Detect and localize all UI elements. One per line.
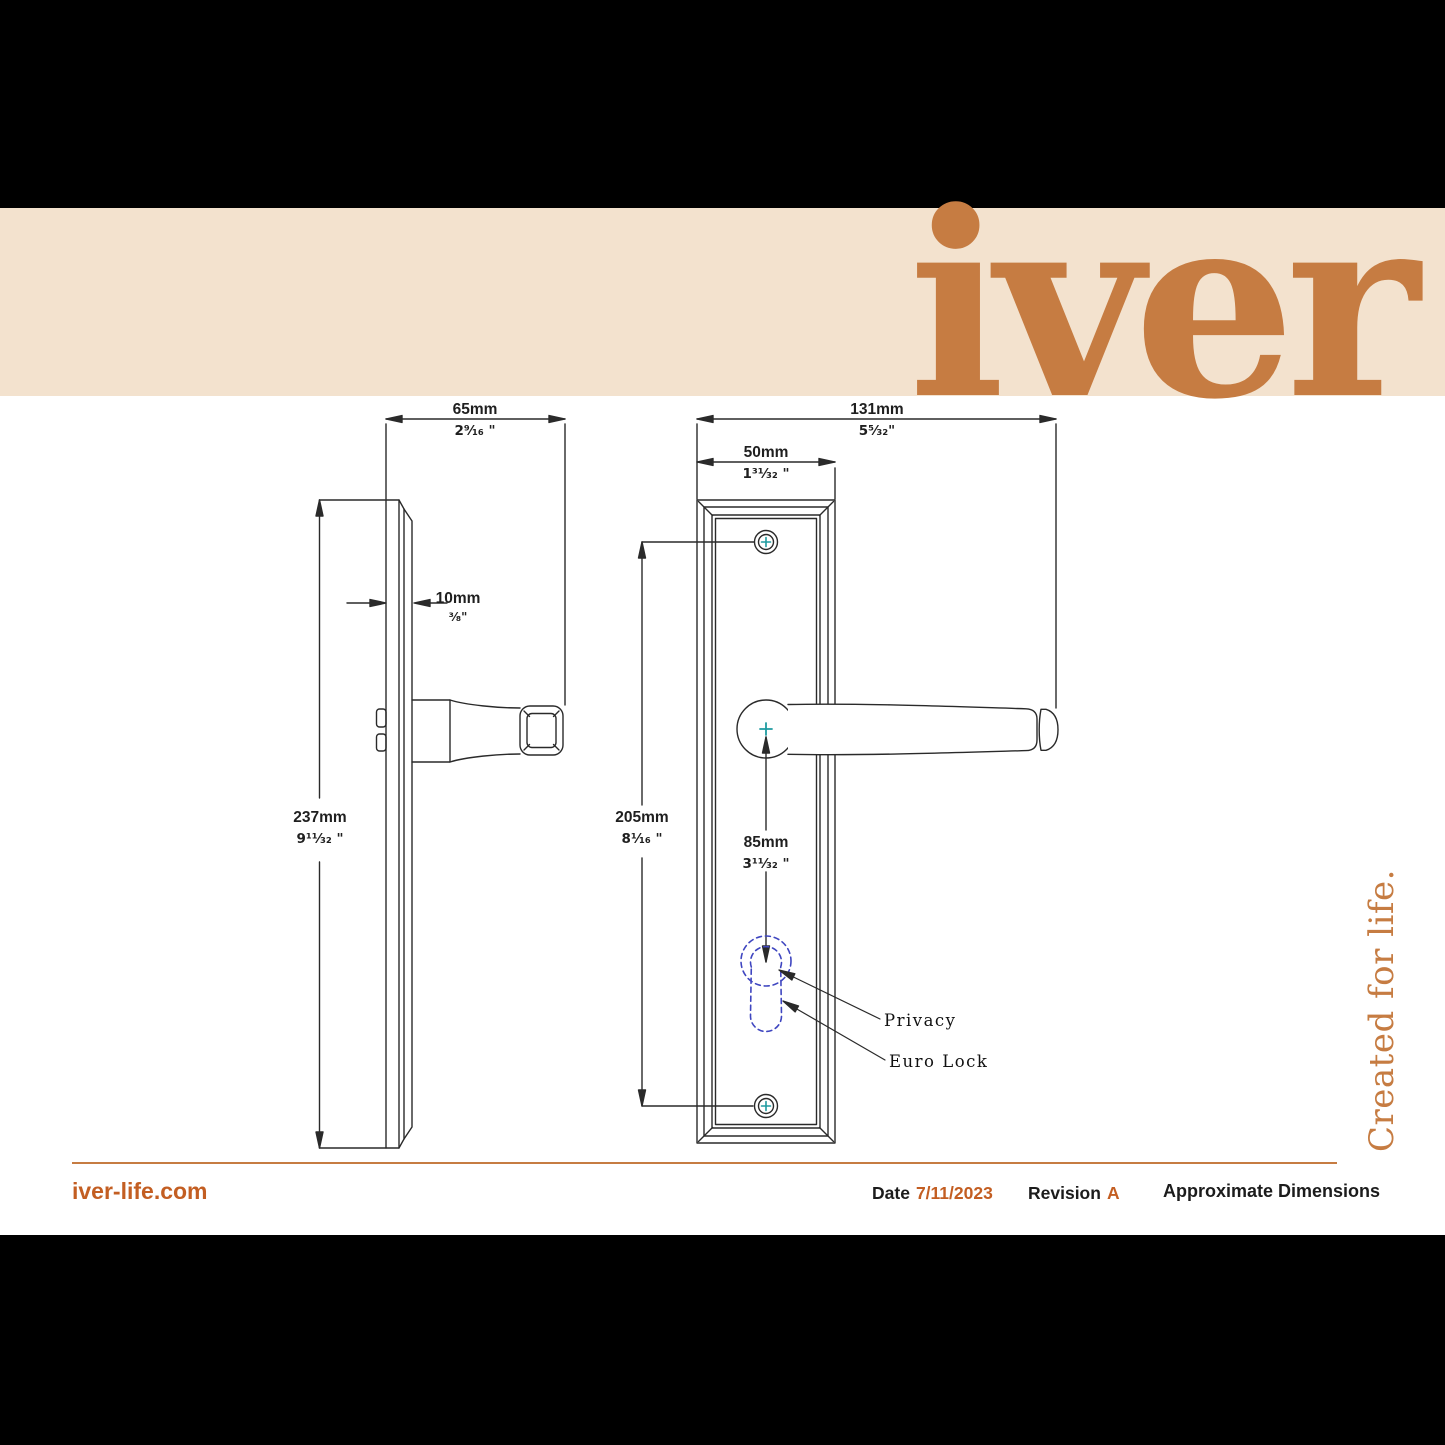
website-link[interactable]: iver-life.com <box>72 1178 208 1205</box>
dim-label-plate-width-mm: 50mm <box>744 444 789 461</box>
privacy-label: Privacy <box>884 1011 957 1030</box>
side-backplate <box>386 500 412 1148</box>
dim-label-centre-to-cylinder-inch: 3¹¹⁄₃₂ " <box>742 856 789 872</box>
technical-drawing: 65mm 2⁹⁄₁₆ " 131mm 5⁵⁄₃₂" 50mm 1³¹⁄₃₂ " … <box>0 396 1445 1235</box>
side-fixing-clips <box>377 709 387 751</box>
leader-lines <box>779 970 885 1060</box>
revision-label: Revision <box>1028 1183 1101 1203</box>
dim-projection <box>386 416 565 706</box>
dim-label-centre-to-cylinder-mm: 85mm <box>744 834 789 851</box>
dim-label-overall-height-mm: 237mm <box>293 809 346 826</box>
front-lever <box>737 700 1058 758</box>
euro-lock-label: Euro Lock <box>889 1052 988 1071</box>
dim-label-screw-centres-inch: 8¹⁄₁₆ " <box>621 831 662 847</box>
footer-note: Approximate Dimensions <box>1163 1181 1380 1202</box>
tagline-created-for-life: Created for life. <box>1362 869 1402 1152</box>
dim-label-projection-mm: 65mm <box>453 401 498 418</box>
bottom-screw <box>755 1095 778 1118</box>
footer-divider <box>72 1162 1337 1164</box>
footer-date: Date7/11/2023 <box>872 1183 993 1204</box>
side-lever <box>412 700 563 762</box>
date-label: Date <box>872 1183 910 1203</box>
dim-thickness <box>347 600 447 607</box>
dim-label-overall-height-inch: 9¹¹⁄₃₂ " <box>296 831 343 847</box>
dim-label-thickness-mm: 10mm <box>436 590 481 607</box>
dim-label-projection-inch: 2⁹⁄₁₆ " <box>454 423 495 439</box>
top-screw <box>755 531 778 554</box>
front-view <box>639 416 1059 1144</box>
spec-sheet-page: { "header": { "title": "Door Lever Annec… <box>0 0 1445 1445</box>
date-value: 7/11/2023 <box>916 1183 993 1203</box>
dim-label-thickness-inch: ³⁄₈" <box>449 610 468 624</box>
lever-end-cap <box>1039 709 1058 750</box>
side-knob-inner <box>527 714 556 748</box>
iver-logo: iver <box>908 179 1410 434</box>
dim-label-screw-centres-mm: 205mm <box>615 809 668 826</box>
dim-label-overall-width-mm: 131mm <box>850 401 903 418</box>
side-view <box>316 416 565 1149</box>
dim-label-plate-width-inch: 1³¹⁄₃₂ " <box>742 466 789 482</box>
footer-revision: RevisionA <box>1028 1183 1120 1204</box>
dim-label-overall-width-inch: 5⁵⁄₃₂" <box>859 423 895 439</box>
revision-value: A <box>1107 1183 1120 1203</box>
